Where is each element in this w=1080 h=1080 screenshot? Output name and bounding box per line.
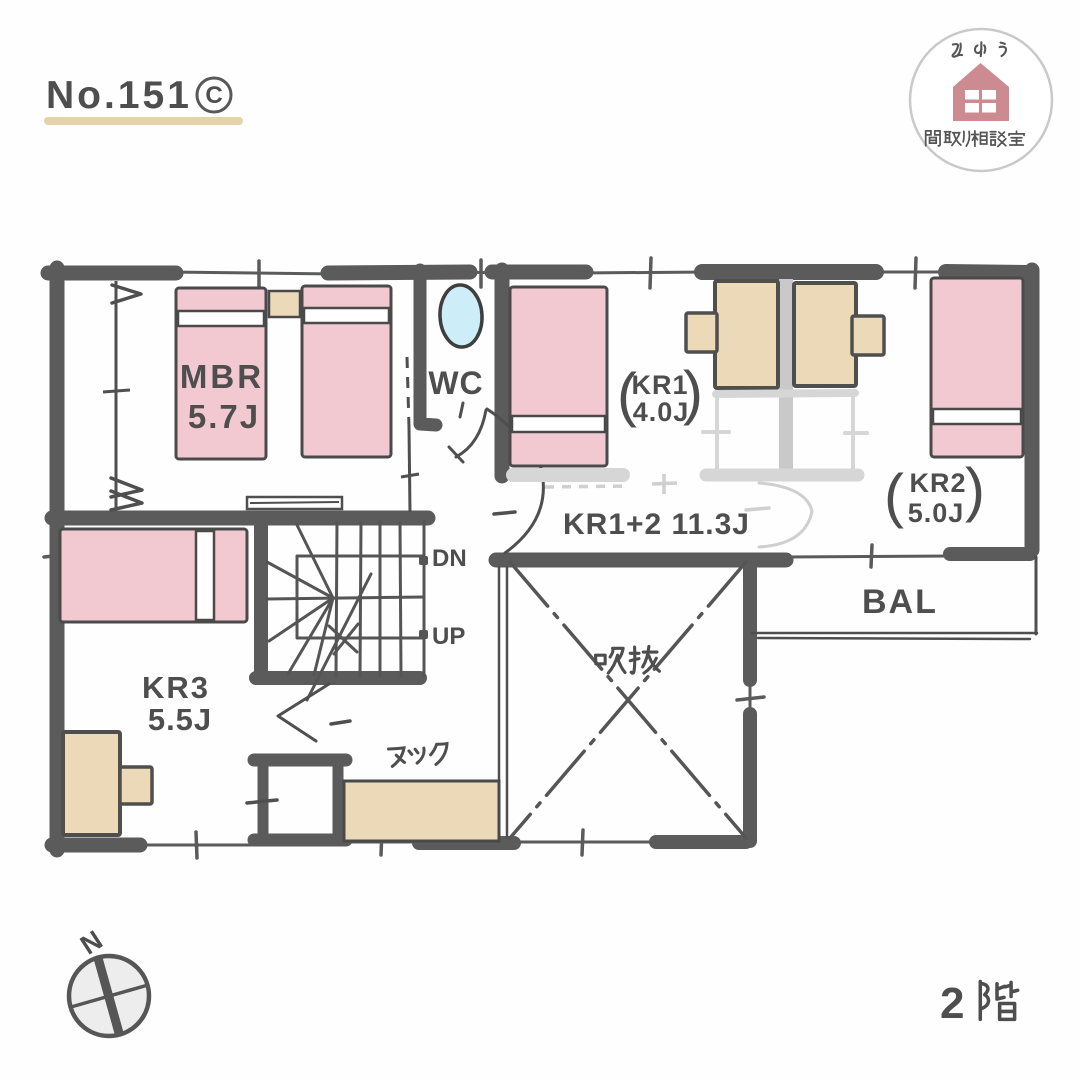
svg-text:KR3: KR3: [142, 670, 210, 705]
svg-text:KR1: KR1: [631, 370, 688, 400]
svg-text:MBR: MBR: [180, 358, 264, 395]
svg-text:KR1+2 11.3J: KR1+2 11.3J: [563, 508, 750, 541]
svg-text:5.0J: 5.0J: [908, 498, 965, 528]
svg-text:No.151: No.151: [46, 74, 192, 117]
svg-text:): ): [965, 456, 985, 523]
svg-text:BAL: BAL: [862, 583, 938, 621]
svg-text:WC: WC: [428, 365, 483, 401]
svg-text:(: (: [884, 462, 904, 529]
svg-text:C: C: [205, 82, 222, 109]
svg-text:KR2: KR2: [909, 468, 966, 498]
svg-text:5.7J: 5.7J: [188, 398, 260, 435]
svg-text:4.0J: 4.0J: [633, 397, 690, 427]
svg-text:DN: DN: [432, 545, 467, 572]
svg-text:2: 2: [940, 979, 964, 1028]
svg-text:5.5J: 5.5J: [148, 702, 212, 737]
svg-text:UP: UP: [432, 623, 465, 650]
